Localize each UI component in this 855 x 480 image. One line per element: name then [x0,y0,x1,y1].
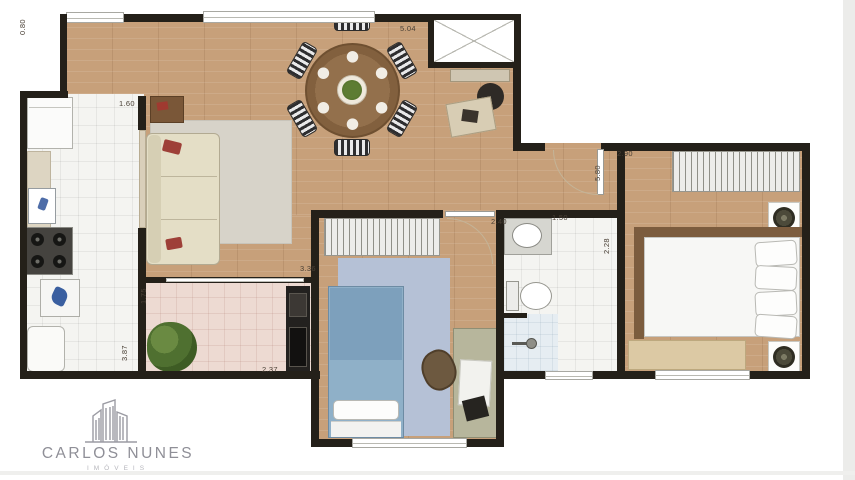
speaker-cone-icon [773,346,795,368]
bedroom2-blanket [330,288,402,360]
dining-chair [334,139,370,156]
suite-bed-frame-left [634,227,644,339]
wall [496,371,545,379]
brand-tagline: IMÓVEIS [18,465,218,472]
centerpiece-plant [342,80,362,100]
speaker-cone-icon [773,207,795,229]
bedroom2-wardrobe [324,218,440,256]
wall [20,91,27,378]
stove-burner [53,233,66,246]
balcony-railing [166,278,304,282]
dim-bathroom-length: 2.28 [602,238,611,254]
buildings-outline-icon [63,398,173,444]
suite-pillow [754,314,798,340]
bedroom2-sheet-fold [331,421,401,437]
grill-door [289,327,307,367]
stove-burner [31,233,44,246]
wall [311,210,319,447]
wall [517,143,545,151]
wall [138,96,146,130]
sideboard-decor [156,101,168,110]
bedroom2-door-leaf [445,211,495,217]
office-desk [450,69,510,82]
sofa-backrest [148,135,161,263]
suite-bench [628,340,746,370]
window [66,12,124,23]
wall [60,14,67,98]
dim-suite-width: 2.90 [617,149,633,158]
dim-bathroom-width: 1.50 [552,213,568,222]
stove-burner [31,255,44,268]
laundry-tub [27,326,65,372]
suite-pillow [754,240,798,268]
stove-burner [53,255,66,268]
dim-bedroom2-width: 2.40 [491,217,507,226]
dim-balcony-depth: 1.75 [139,288,148,304]
dim-kitchen-length: 3.87 [120,345,129,361]
window [203,11,375,23]
window [352,438,467,448]
window [655,370,750,380]
fridge-line [29,107,71,108]
dim-entry-wall: 0.80 [18,19,27,35]
window [545,371,593,380]
brand-logo: CARLOS NUNES IMÓVEIS [18,398,218,476]
wall [20,91,68,98]
sofa-seat-line [161,219,217,220]
toilet-tank [506,281,519,311]
bathroom-sink [512,223,542,248]
suite-bed-frame-top [634,227,802,237]
suite-ac-unit-bottom [768,341,800,373]
sofa-seat-line [161,176,217,177]
toilet-bowl [520,282,552,310]
wall [20,371,146,379]
kitchen-pass-counter [139,130,146,228]
brand-name: CARLOS NUNES [18,445,218,463]
dim-bedroom2-length: 3.36 [300,264,316,273]
wall [311,210,443,218]
dim-kitchen-width: 1.60 [119,99,135,108]
floor-plan-image: 5.04 0.80 1.60 3.87 1.75 2.37 3.36 2.40 … [0,0,855,480]
fridge [27,97,73,149]
suite-wardrobe [672,151,800,192]
shaft-box [428,14,520,68]
tv-sideboard [150,96,184,123]
wall [802,143,810,379]
wall [503,313,527,318]
dim-suite-length: 5.80 [593,165,602,181]
wall [496,210,504,447]
suite-pillow [754,265,797,291]
wall [617,146,625,379]
shower-head [526,338,537,349]
bedroom2-pillow [333,400,399,420]
page-edge-right [843,0,855,480]
balcony-plant [147,322,197,372]
office-table-object [461,109,479,123]
grill-panel [289,293,307,317]
dim-balcony-width: 2.37 [262,365,278,374]
dim-living-width: 5.04 [400,24,416,33]
wall [138,371,320,379]
